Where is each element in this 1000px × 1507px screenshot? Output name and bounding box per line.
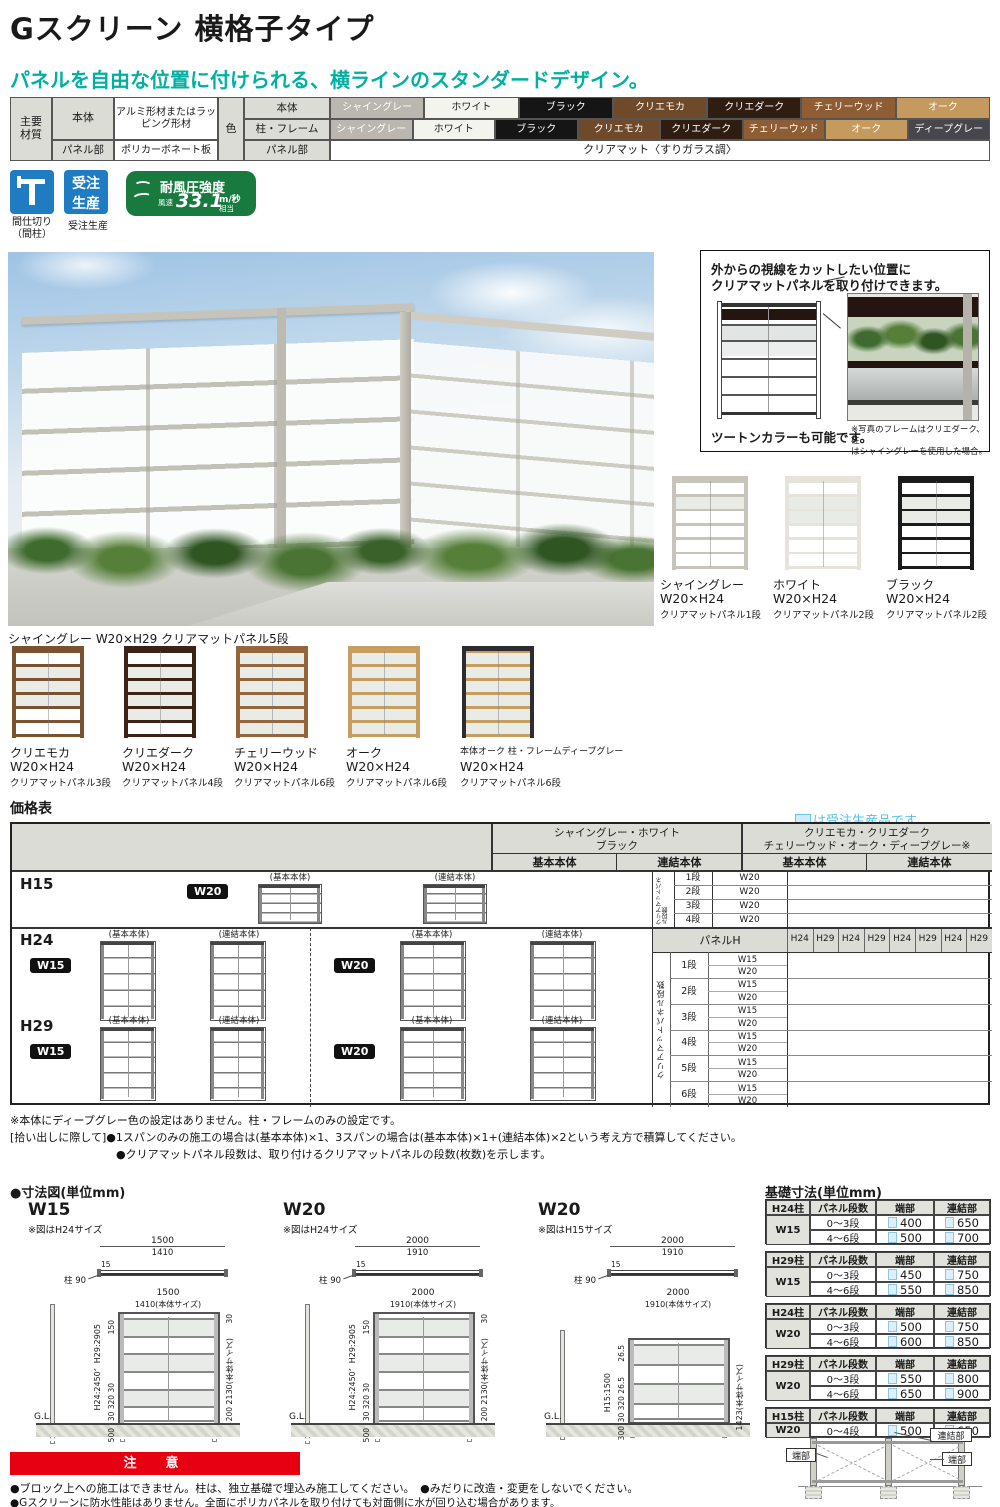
fence-seam xyxy=(498,651,499,735)
foundation-cell: 0〜3段 xyxy=(810,1267,876,1282)
dim-top-bar xyxy=(610,1270,735,1276)
dim-frame-post xyxy=(630,1340,634,1422)
price-drawing-seam xyxy=(563,1030,564,1097)
foundation-cell: 800 xyxy=(934,1371,990,1386)
size-badge: W15 xyxy=(30,954,71,973)
dim-top-w2: 1910 xyxy=(610,1248,735,1258)
foundation-table-H24柱-W20: H24柱パネル段数端部連結部W200〜3段5007504〜6段600850 xyxy=(765,1303,991,1348)
foundation-cell: 450 xyxy=(876,1267,934,1282)
price-table-line xyxy=(670,1081,992,1082)
foundation-table-H29柱-W20: H29柱パネル段数端部連結部W200〜3段5508004〜6段650900 xyxy=(765,1355,991,1400)
price-drawing-post xyxy=(591,1028,594,1099)
photo-note: ※写真のフレームはクリエダーク、柱はシャイングレーを使用した場合。 xyxy=(851,425,989,458)
price-drawing-post xyxy=(151,942,154,1019)
fence-post-right xyxy=(416,646,420,738)
variant-panel: クリアマットパネル1段 xyxy=(660,607,772,621)
variants-right: シャイングレーW20×H24クリアマットパネル1段ホワイトW20×H24クリアマ… xyxy=(660,476,1000,626)
dim-frame-rail xyxy=(122,1318,216,1320)
price-drawing-cap xyxy=(424,885,485,888)
materials-cell: アルミ形材またはラッピング形材 xyxy=(114,97,218,140)
dim-frame-rail xyxy=(122,1371,216,1373)
foundation-cell: 650 xyxy=(876,1386,934,1401)
price-drawing-post xyxy=(101,1028,104,1099)
price-drawing-post xyxy=(261,1028,264,1099)
foundation-cell: 900 xyxy=(934,1386,990,1401)
price-drawing-seam xyxy=(238,1030,239,1097)
foundation-cell: H29柱 xyxy=(766,1356,810,1371)
dim-line xyxy=(610,1246,735,1247)
dim-top-bar xyxy=(100,1270,225,1276)
dim-frame-post xyxy=(120,1314,124,1424)
dimension-figures: W15※図はH24サイズ1500141015柱 9015001410(本体サイズ… xyxy=(0,1198,765,1458)
dim-ground xyxy=(546,1424,750,1437)
variant-size: W20×H24 xyxy=(10,759,120,774)
price-table-text: 連結本体 xyxy=(867,856,992,870)
diagram-label-tanbu-right: 端部 xyxy=(942,1452,972,1466)
color-swatch-1-1: ホワイト xyxy=(413,119,496,140)
variant-panel: クリアマットパネル6段 xyxy=(346,775,456,789)
dim-frame-rail xyxy=(377,1371,471,1373)
variant-panel: クリアマットパネル6段 xyxy=(234,775,344,789)
price-table-line xyxy=(674,885,992,886)
price-drawing-seam xyxy=(455,887,456,920)
fence-post-right xyxy=(744,476,748,570)
foundation-table-H24柱-W15: H24柱パネル段数端部連結部W150〜3段4006504〜6段500700 xyxy=(765,1199,991,1244)
dan-w20: W20 xyxy=(708,1019,787,1030)
dim-body-height: 1423(本体サイズ) xyxy=(734,1352,746,1442)
dan-w20: W20 xyxy=(708,993,787,1004)
price-table-line xyxy=(670,978,992,979)
price-table-line xyxy=(670,1030,992,1031)
dim-frame-rail xyxy=(122,1389,216,1391)
panel-h-col: H24 xyxy=(787,934,813,945)
foundation-cell: パネル段数 xyxy=(810,1200,876,1215)
h24-w15-link xyxy=(210,941,266,1021)
price-table-line xyxy=(674,913,992,914)
fence-post-right xyxy=(304,646,308,738)
dim-frame-panel xyxy=(378,1389,470,1407)
dim-ground xyxy=(291,1424,495,1437)
h29-w20-basic xyxy=(400,1027,466,1101)
dim-top-w2: 1410 xyxy=(100,1248,225,1258)
h15-link-drawing xyxy=(423,884,487,924)
price-table-text: (基本本体) xyxy=(94,930,164,941)
dim-top-t: 15 xyxy=(611,1260,621,1269)
caution-banner: 注 意 xyxy=(10,1452,300,1475)
dan-w15: W15 xyxy=(708,1058,787,1069)
fence-seam xyxy=(48,651,49,735)
caution-line-2: ●Gスクリーンに防水性能はありません。全面にポリカパネルを取り付けても対面側に水… xyxy=(10,1495,560,1507)
dim-post-label: 柱 90 xyxy=(319,1274,341,1286)
price-table-line xyxy=(652,952,992,953)
wind-icon-2 xyxy=(131,192,152,205)
foundation-cell: パネル段数 xyxy=(810,1356,876,1371)
dan-vertical-label: クリアマットパネル段数 xyxy=(653,873,673,925)
foundation-cell: 750 xyxy=(934,1319,990,1334)
fence-seam xyxy=(823,481,824,567)
feature-photo xyxy=(847,293,979,421)
dim-top-t: 15 xyxy=(356,1260,366,1269)
foundation-cell: 4〜6段 xyxy=(810,1282,876,1297)
materials-cell: 柱・フレーム xyxy=(244,119,330,140)
dim-frame-panel xyxy=(633,1383,725,1403)
foundation-cell: 端部 xyxy=(876,1252,934,1267)
dim-figure-W15-0: W15※図はH24サイズ1500141015柱 9015001410(本体サイズ… xyxy=(0,1198,255,1458)
foundation-cell: H24柱 xyxy=(766,1304,810,1319)
materials-cell: 色 xyxy=(218,97,244,161)
price-drawing-post xyxy=(401,1028,404,1099)
post-diagram: 端部連結部端部 xyxy=(790,1428,990,1504)
panel-h-label: パネルH xyxy=(653,934,787,948)
feature-box: 外からの視線をカットしたい位置に クリアマットパネルを取り付けできます。 xyxy=(700,250,990,452)
color-swatch-1-2: ブラック xyxy=(495,119,578,140)
foundation-table-H29柱-W15: H29柱パネル段数端部連結部W150〜3段4507504〜6段550850 xyxy=(765,1251,991,1296)
diagram-label-renketsu: 連結部 xyxy=(930,1428,972,1442)
foundation-cell: W20 xyxy=(766,1319,810,1349)
variant-panel: クリアマットパネル2段 xyxy=(773,607,885,621)
dan-w20: W20 xyxy=(708,1096,787,1107)
wind-prefix: 風速 xyxy=(158,197,173,208)
dim-frame-rail xyxy=(632,1418,726,1420)
wind-resistance-badge: 耐風圧強度 風速 33.1 m/秒 相当 xyxy=(126,171,256,216)
diagram-leader xyxy=(816,1453,828,1458)
made-to-order-caption: 受注生産 xyxy=(58,217,118,232)
dim-fig-name: W20 xyxy=(538,1200,580,1220)
dim-front-frame xyxy=(118,1312,220,1426)
dim-top-w1: 2000 xyxy=(610,1236,735,1246)
dim-gl-line xyxy=(546,1423,750,1425)
price-drawing-post xyxy=(482,885,485,922)
fence-post-right xyxy=(857,476,861,570)
price-table-text: (基本本体) xyxy=(394,930,470,941)
foundation-cell: 連結部 xyxy=(934,1408,990,1423)
dim-frame-rail xyxy=(377,1336,471,1338)
dim-side-post xyxy=(560,1330,565,1424)
variant-panel: クリアマットパネル4段 xyxy=(122,775,232,789)
dim-front-frame xyxy=(628,1338,730,1424)
dim-top-offset: 26.5 xyxy=(616,1336,628,1370)
two-tone-caption: ツートンカラーも可能です。 xyxy=(711,427,872,446)
dim-top-right: 30 xyxy=(479,1308,491,1330)
dashed-divider xyxy=(310,928,311,1107)
partition-icon xyxy=(10,170,54,214)
color-swatch-1-3: クリエモカ xyxy=(578,119,661,140)
price-table-text: (連結本体) xyxy=(204,1016,274,1027)
materials-cell: 本体 xyxy=(244,97,330,119)
foundation-cell: W20 xyxy=(766,1371,810,1401)
fence-post-right xyxy=(80,646,84,738)
color-swatch-1-6: オーク xyxy=(825,119,908,140)
dim-frame-rail xyxy=(377,1420,471,1422)
dim-frame-rail xyxy=(632,1344,726,1346)
fence-post-left xyxy=(348,646,352,738)
dim-fig-name: W20 xyxy=(283,1200,325,1220)
callout-line-bottom xyxy=(823,313,841,329)
size-badge: W20 xyxy=(334,1040,375,1059)
materials-cell: パネル部 xyxy=(244,140,330,161)
dim-figure-W20-1: W20※図はH24サイズ2000191015柱 9020001910(本体サイズ… xyxy=(255,1198,510,1458)
fence-seam xyxy=(384,651,385,735)
dim-top-offset: 150 xyxy=(106,1310,118,1344)
foundation-cell: パネル段数 xyxy=(810,1408,876,1423)
foundation-cell: 600 xyxy=(876,1334,934,1349)
h29-w15-link xyxy=(210,1027,266,1101)
variants-bottom: クリエモカW20×H24クリアマットパネル3段クリエダークW20×H24クリアマ… xyxy=(10,646,660,786)
panel-h-col: H29 xyxy=(813,934,839,945)
price-drawing-cap xyxy=(211,942,264,945)
dan-w20: W20 xyxy=(708,1044,787,1055)
dan-w15: W15 xyxy=(708,1084,787,1095)
h15-dan-w: W20 xyxy=(712,915,787,926)
dim-ground xyxy=(36,1424,240,1437)
color-swatch-0-1: ホワイト xyxy=(424,97,518,119)
hero-photo xyxy=(8,252,654,626)
foundation-cell: 端部 xyxy=(876,1356,934,1371)
foundation-cell: 850 xyxy=(934,1282,990,1297)
foundation-cell: パネル段数 xyxy=(810,1304,876,1319)
dim-height-label: H24:2450、H29:2905 xyxy=(92,1322,104,1412)
h24-w20-basic xyxy=(400,941,466,1021)
fence-seam xyxy=(160,651,161,735)
h15-basic-drawing xyxy=(258,884,322,924)
price-drawing-cap xyxy=(531,942,594,945)
feature-headline-2: クリアマットパネルを取り付けできます。 xyxy=(711,275,947,294)
foundation-cell: 端部 xyxy=(876,1408,934,1423)
size-badge: W20 xyxy=(334,954,375,973)
fence-post-right xyxy=(192,646,196,738)
dan-label: 6段 xyxy=(670,1089,708,1101)
dim-frame-rail xyxy=(377,1406,471,1408)
dim-frame-panel xyxy=(378,1318,470,1336)
color-swatch-0-6: オーク xyxy=(896,97,990,119)
dan-w20: W20 xyxy=(708,1070,787,1081)
foundation-cell: 連結部 xyxy=(934,1356,990,1371)
price-drawing-seam xyxy=(238,944,239,1017)
dim-top-t: 15 xyxy=(101,1260,111,1269)
dim-frame-rail xyxy=(122,1336,216,1338)
price-note-2: [拾い出しに際して]●1スパンのみの施工の場合は(基本本体)×1、3スパンの場合… xyxy=(10,1129,742,1145)
materials-table: 主要材質本体アルミ形材またはラッピング形材パネル部ポリカーボネート板色本体シャイ… xyxy=(10,97,990,162)
dim-figure-W20-2: W20※図はH15サイズ2000191015柱 9020001910(本体サイズ… xyxy=(510,1198,765,1458)
partition-icon-stub xyxy=(17,176,21,188)
materials-cell: クリアマット〈すりガラス調〉 xyxy=(330,140,990,161)
price-table-text: 基本本体 xyxy=(742,856,867,870)
dim-height-label: H15:1500 xyxy=(602,1348,614,1438)
price-drawing-cap xyxy=(401,942,464,945)
dan-vertical-label: クリアマットパネル段数 xyxy=(653,954,669,1104)
price-drawing-post xyxy=(531,942,534,1019)
foundation-cell: 0〜3段 xyxy=(810,1371,876,1386)
price-drawing-seam xyxy=(128,1030,129,1097)
fence-post-left xyxy=(12,646,16,738)
partition-icon-post xyxy=(29,179,35,205)
price-note-1: ※本体にディープグレー色の設定はありません。柱・フレームのみの設定です。 xyxy=(10,1112,401,1128)
dim-frame-rail xyxy=(377,1389,471,1391)
price-drawing-cap xyxy=(401,1028,464,1031)
catalog-page: Gスクリーン 横格子タイプ パネルを自由な位置に付けられる、横ラインのスタンダー… xyxy=(0,0,1000,1507)
h15-dan: 3段 xyxy=(674,901,712,912)
materials-cell: 本体 xyxy=(52,97,114,140)
foundation-cell: H29柱 xyxy=(766,1252,810,1267)
dan-w15: W15 xyxy=(708,1032,787,1043)
price-table-text: (基本本体) xyxy=(94,1016,164,1027)
dim-frame-post xyxy=(214,1314,218,1424)
price-table-line xyxy=(670,1055,992,1056)
variant-fence-ブラック xyxy=(898,476,974,570)
fence-post-left xyxy=(898,476,902,570)
dan-w15: W15 xyxy=(708,1006,787,1017)
dim-frame-panel xyxy=(123,1353,215,1371)
foundation-cell: 550 xyxy=(876,1371,934,1386)
fence-post-left xyxy=(124,646,128,738)
variant-fence-3 xyxy=(348,646,420,738)
foundation-cell: 0〜3段 xyxy=(810,1319,876,1334)
price-drawing-cap xyxy=(101,942,154,945)
dim-front-frame xyxy=(373,1312,475,1426)
foundation-cell: 4〜6段 xyxy=(810,1334,876,1349)
dim-embed: 300 xyxy=(616,1424,628,1442)
dim-gl-label: G.L. xyxy=(34,1412,52,1422)
dan-label: 3段 xyxy=(670,1012,708,1024)
dim-gl-line xyxy=(36,1423,240,1425)
h15-dan: 4段 xyxy=(674,915,712,926)
price-drawing-post xyxy=(461,942,464,1019)
color-swatch-0-2: ブラック xyxy=(519,97,613,119)
dim-front-w1: 2000 xyxy=(363,1288,483,1298)
color-swatch-1-0: シャイングレー xyxy=(330,119,413,140)
h15-dan-w: W20 xyxy=(712,901,787,912)
dim-height-label: H24:2450、H29:2905 xyxy=(347,1322,359,1412)
dim-top-right: 30 xyxy=(224,1308,236,1330)
price-drawing-seam xyxy=(563,944,564,1017)
materials-cell: 主要材質 xyxy=(10,97,52,161)
dan-w15: W15 xyxy=(708,980,787,991)
dim-bottom-right: 200 xyxy=(479,1402,491,1426)
dim-top-w2: 1910 xyxy=(355,1248,480,1258)
fence-post-left xyxy=(462,646,466,738)
foundation-cell: 750 xyxy=(934,1267,990,1282)
dim-front-w1: 2000 xyxy=(618,1288,738,1298)
h15-dan: 2段 xyxy=(674,887,712,898)
dim-frame-rail xyxy=(122,1420,216,1422)
dim-frame-rail xyxy=(632,1364,726,1366)
dim-frame-post xyxy=(724,1340,728,1422)
foundation-cell: 850 xyxy=(934,1334,990,1349)
price-drawing-post xyxy=(259,885,262,922)
variant-fence-4 xyxy=(462,646,534,738)
price-h15-label: H15 xyxy=(20,875,80,894)
page-title: Gスクリーン 横格子タイプ xyxy=(10,6,374,48)
dim-frame-panel xyxy=(123,1318,215,1336)
dim-fig-note: ※図はH15サイズ xyxy=(538,1222,612,1236)
foundation-tables: H24柱パネル段数端部連結部W150〜3段4006504〜6段500700H29… xyxy=(765,1199,991,1444)
dim-frame-seam xyxy=(678,1343,679,1419)
dan-label: 2段 xyxy=(670,986,708,998)
price-table-line xyxy=(12,870,992,872)
panel-h-col: H29 xyxy=(864,934,890,945)
fence-post-right xyxy=(530,646,534,738)
wind-unit-suffix: 相当 xyxy=(219,203,234,214)
foundation-cell: 4〜6段 xyxy=(810,1386,876,1401)
price-group2: クリエモカ・クリエダーク xyxy=(742,827,992,840)
dim-fig-note: ※図はH24サイズ xyxy=(283,1222,357,1236)
panel-h-col: H24 xyxy=(941,934,967,945)
variant-panel: クリアマットパネル6段 xyxy=(460,775,570,789)
dim-gl-label: G.L. xyxy=(544,1412,562,1422)
variant-fence-0 xyxy=(12,646,84,738)
wind-icon xyxy=(134,181,152,190)
price-drawing-post xyxy=(151,1028,154,1099)
foundation-cell: 500 xyxy=(876,1319,934,1334)
foundation-cell: 連結部 xyxy=(934,1304,990,1319)
dan-label: 4段 xyxy=(670,1037,708,1049)
price-table: シャイングレー・ホワイトブラッククリエモカ・クリエダークチェリーウッド・オーク・… xyxy=(10,822,990,1105)
dim-top-w1: 2000 xyxy=(355,1236,480,1246)
dim-top-w1: 1500 xyxy=(100,1236,225,1246)
diagram-leader xyxy=(930,1459,944,1460)
variant-size: W20×H24 xyxy=(660,591,772,606)
fence-post-left xyxy=(236,646,240,738)
price-drawing-seam xyxy=(433,944,434,1017)
foundation-cell: 0〜3段 xyxy=(810,1215,876,1230)
caution-line-1: ●ブロック上への施工はできません。柱は、独立基礎で埋込み施工してください。 ●み… xyxy=(10,1480,638,1496)
dim-gl-label: G.L. xyxy=(289,1412,307,1422)
dim-post-label: 柱 90 xyxy=(574,1274,596,1286)
dan-w15: W15 xyxy=(708,955,787,966)
w20-badge: W20 xyxy=(187,880,228,899)
variant-panel: クリアマットパネル3段 xyxy=(10,775,120,789)
color-swatch-1-7: ディープグレー xyxy=(908,119,991,140)
dim-bottom-right: 200 xyxy=(224,1402,236,1426)
dim-top-cap xyxy=(734,1269,738,1277)
diagram-foundation xyxy=(805,1486,822,1499)
dim-front-w1: 1500 xyxy=(108,1288,228,1298)
h24-w20-link xyxy=(530,941,596,1021)
panel-h-col: H29 xyxy=(966,934,992,945)
foundation-cell: 700 xyxy=(934,1230,990,1245)
price-table-line xyxy=(674,899,992,900)
dim-top-offset: 150 xyxy=(361,1310,373,1344)
dim-bottom-stack: 30 320 26.5 xyxy=(616,1378,628,1422)
foundation-cell: H15柱 xyxy=(766,1408,810,1423)
diagram-foundation xyxy=(880,1486,897,1499)
price-drawing-post xyxy=(531,1028,534,1099)
dim-frame-rail xyxy=(122,1353,216,1355)
variant-size: W20×H24 xyxy=(886,591,998,606)
price-h24-label: H24 xyxy=(20,931,80,950)
diagram-label-tanbu-left: 端部 xyxy=(786,1448,816,1462)
h15-dan: 1段 xyxy=(674,873,712,884)
price-table-text: (連結本体) xyxy=(524,930,600,941)
price-drawing-seam xyxy=(128,944,129,1017)
diagram-leader xyxy=(894,1432,931,1441)
hero-caption: シャイングレー W20×H29 クリアマットパネル5段 xyxy=(8,630,289,647)
dim-gl-line xyxy=(291,1423,495,1425)
price-h29-label: H29 xyxy=(20,1017,80,1036)
diagram-post xyxy=(885,1438,892,1486)
dim-frame-rail xyxy=(632,1383,726,1385)
dim-bottom-stack: 30 320 30 xyxy=(361,1380,373,1424)
wind-value: 33.1 xyxy=(176,190,223,212)
foundation-cell: W15 xyxy=(766,1267,810,1297)
h29-w20-link xyxy=(530,1027,596,1101)
price-table-text: (連結本体) xyxy=(524,1016,600,1027)
foundation-cell: 650 xyxy=(934,1215,990,1230)
h29-w15-basic xyxy=(100,1027,156,1101)
price-note-3: ●クリアマットパネル段数は、取り付けるクリアマットパネルの段数(枚数)を示します… xyxy=(116,1146,551,1162)
dim-front-w2: 1410(本体サイズ) xyxy=(100,1299,236,1310)
price-drawing-post xyxy=(211,942,214,1019)
